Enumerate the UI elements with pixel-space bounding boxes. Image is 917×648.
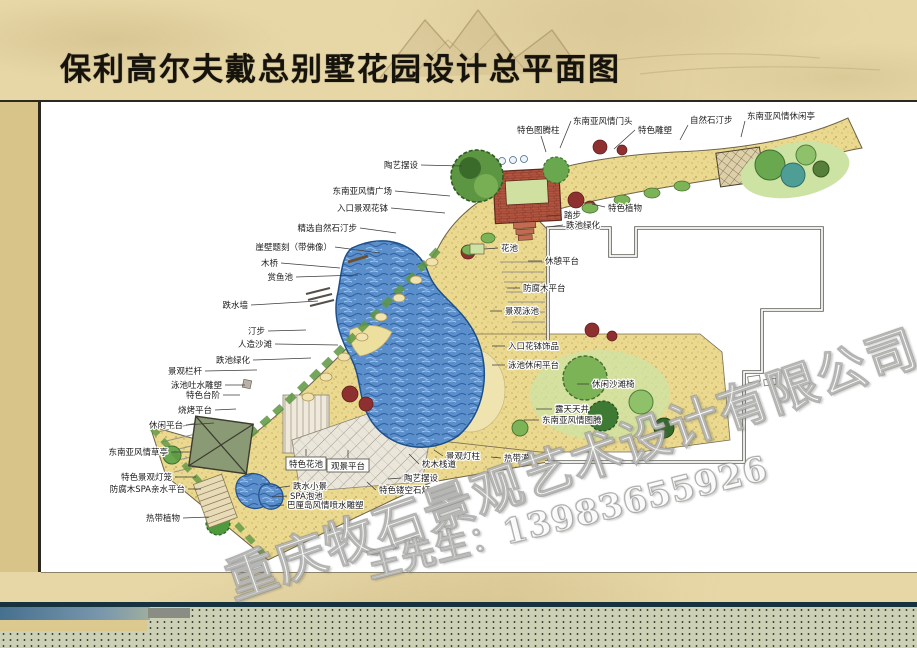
- plan-label: 枕木栈道: [422, 459, 457, 470]
- plan-label: 景观泳池: [505, 306, 540, 317]
- label-leader-line: [253, 358, 311, 360]
- plan-label: 露天天井: [555, 404, 589, 415]
- plan-label: 泳池休闲平台: [508, 360, 559, 371]
- spouting-sculpture: [242, 379, 251, 388]
- label-leader-line: [183, 517, 209, 518]
- plan-label: 跌池绿化: [566, 220, 601, 231]
- plan-label: 踏步: [564, 210, 581, 221]
- plan-label: 特色台阶: [186, 390, 221, 401]
- plan-label: 烧烤平台: [178, 405, 212, 416]
- flower-bed: [470, 244, 484, 254]
- plan-label: 汀步: [248, 326, 265, 337]
- plan-label: 木桥: [261, 258, 279, 269]
- plan-label: 防腐木平台: [523, 283, 566, 294]
- label-leader-line: [360, 228, 396, 233]
- label-leader-line: [268, 330, 306, 331]
- plan-label: 观景平台: [331, 461, 365, 472]
- waterfall-wall: [306, 288, 334, 306]
- plan-label: 入口景观花钵: [337, 203, 389, 214]
- plan-label: 特色雕塑: [638, 125, 673, 136]
- plan-label: 赏鱼池: [267, 272, 293, 283]
- plan-label: 特色镂空石灯: [379, 485, 431, 496]
- plan-label: 东南亚风情图腾: [542, 415, 602, 426]
- plan-label: 东南亚风情广场: [332, 186, 392, 197]
- bottom-blue-patch: [0, 607, 150, 620]
- plan-label: 人造沙滩: [238, 339, 273, 350]
- label-leader-line: [741, 121, 745, 137]
- plan-label: 热带灌木: [504, 453, 539, 464]
- slide: { "slide": { "title": "保利高尔夫戴总别墅花园设计总平面图…: [0, 0, 917, 648]
- plan-label: 巴厘岛风情喷水雕塑: [287, 500, 364, 511]
- plan-label: 休憩平台: [545, 256, 579, 267]
- plan-label: 跌池绿化: [216, 355, 251, 366]
- plan-label: 特色景观灯笼: [121, 472, 173, 483]
- label-leader-line: [395, 191, 450, 196]
- label-leader-line: [680, 125, 688, 140]
- plan-label: 跌水墙: [222, 300, 248, 311]
- plan-label: 防腐木SPA亲水平台: [110, 484, 185, 495]
- plan-label: 东南亚风情草亭: [108, 447, 168, 458]
- plan-label: 入口花钵饰品: [508, 341, 559, 352]
- label-leader-line: [541, 136, 546, 152]
- label-leader-line: [215, 409, 236, 410]
- label-leader-line: [391, 208, 445, 213]
- label-leader-line: [281, 263, 340, 268]
- plan-label: 休闲平台: [149, 420, 183, 431]
- plan-label: 陶艺摆设: [404, 473, 439, 484]
- plan-label: 特色花池: [289, 459, 324, 470]
- label-leader-line: [560, 121, 571, 148]
- plan-label: 特色图腾柱: [517, 125, 560, 136]
- label-leader-line: [251, 301, 318, 305]
- plan-label: 精选自然石汀步: [297, 223, 357, 234]
- garden-plan-svg: 陶艺摆设东南亚风情广场入口景观花钵精选自然石汀步崖壁题刻（带佛像）木桥赏鱼池跌水…: [0, 0, 917, 648]
- plan-label: 热带植物: [146, 513, 181, 524]
- sun-loungers: [748, 375, 777, 386]
- plan-label: 休闲沙滩椅: [592, 379, 635, 390]
- bottom-tan-patch: [0, 620, 147, 631]
- bottom-gray-patch: [148, 608, 190, 618]
- grass-pavilion: [189, 416, 253, 474]
- plan-label: 特色植物: [608, 203, 643, 214]
- plan-label: 东南亚风情门头: [573, 116, 633, 127]
- plan-label: 陶艺摆设: [384, 160, 419, 171]
- plan-label: 花池: [501, 243, 519, 254]
- plan-label: 泳池吐水雕塑: [171, 380, 223, 391]
- plan-label: 跌水小景: [293, 481, 327, 492]
- plan-label: 自然石汀步: [690, 115, 733, 126]
- plan-label: 景观栏杆: [168, 366, 203, 377]
- label-leader-line: [275, 344, 338, 345]
- label-leader-line: [205, 370, 257, 371]
- plan-label: 崖壁题刻（带佛像）: [255, 242, 332, 253]
- plan-label: 东南亚风情休闲亭: [747, 111, 815, 122]
